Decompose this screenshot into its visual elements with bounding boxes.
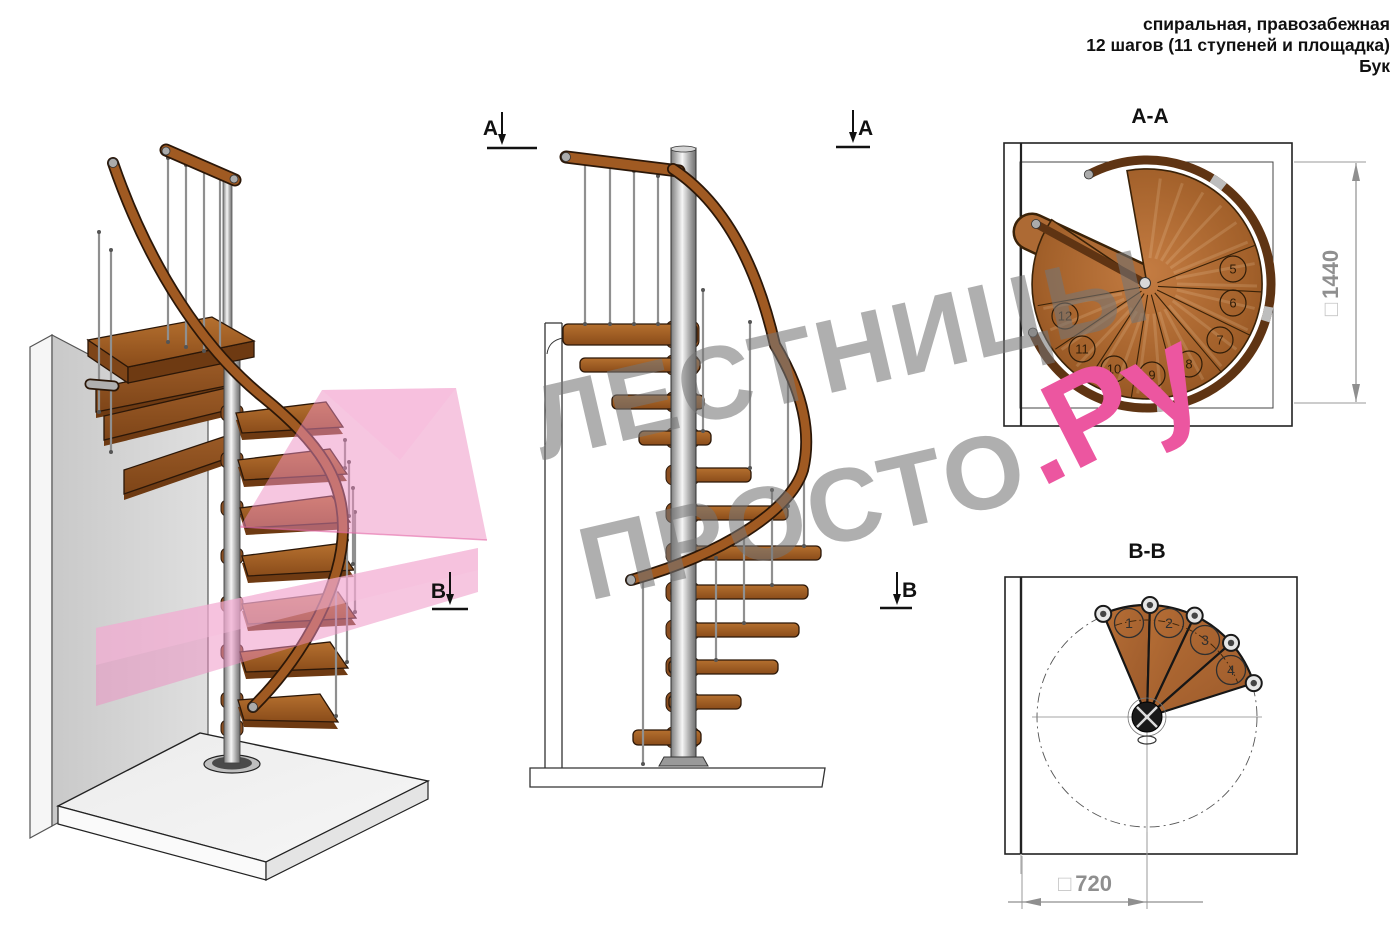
plan-bb-title: B-B	[1128, 540, 1165, 563]
aa-step-number: 6	[1229, 296, 1236, 311]
aa-dimension-text: □1440	[1318, 250, 1343, 316]
aa-step-number: 9	[1148, 368, 1155, 383]
marker-a-letter: A	[858, 117, 873, 140]
bb-step-number: 1	[1125, 615, 1133, 631]
marker-b-letter: B	[902, 579, 917, 602]
spec-steps: 12 шагов (11 ступеней и площадка)	[1086, 35, 1390, 56]
newel-post-iso	[223, 172, 232, 348]
aa-step-number: 11	[1075, 342, 1089, 357]
aa-dimension: □1440	[1294, 162, 1366, 403]
elevation-handrail	[627, 169, 807, 585]
bb-step-number: 3	[1201, 632, 1209, 648]
elevation-top-rail	[562, 153, 680, 172]
aa-step-number: 5	[1229, 262, 1236, 277]
wall-bracket	[90, 384, 114, 386]
center-pole-elevation	[671, 148, 696, 766]
bb-step-number: 4	[1227, 662, 1235, 678]
marker-a-letter: A	[483, 117, 498, 140]
spec-header: спиральная, правозабежная 12 шагов (11 с…	[1086, 14, 1390, 77]
aa-step-number: 7	[1216, 333, 1223, 348]
drawing-sheet: B A A B A-A	[0, 0, 1400, 931]
aa-step-number: 12	[1058, 309, 1072, 324]
aa-step-number: 8	[1185, 357, 1192, 372]
wall-edge	[30, 335, 52, 838]
section-marker-a-left: A	[483, 112, 537, 148]
spec-material: Бук	[1086, 56, 1390, 77]
plan-view-aa: A-A 56789101112 □1440	[1004, 105, 1366, 426]
aa-step-number: 10	[1107, 362, 1121, 377]
bb-dimension-text: □720	[1058, 871, 1112, 896]
marker-b-letter: B	[431, 580, 446, 603]
plan-aa-title: A-A	[1131, 105, 1168, 128]
pole-base-elevation	[659, 757, 708, 766]
spec-type: спиральная, правозабежная	[1086, 14, 1390, 35]
section-marker-b-elevation: B	[880, 572, 917, 608]
plan-view-bb: B-B 1234 □720	[1005, 540, 1297, 909]
elevation-view: A A B	[483, 110, 917, 787]
iso-view: B	[30, 147, 487, 880]
bb-step-number: 2	[1165, 615, 1173, 631]
technical-drawing: B A A B A-A	[0, 0, 1400, 931]
section-marker-a-right: A	[836, 110, 873, 147]
iso-top-rail	[162, 147, 238, 183]
floor-band	[530, 768, 825, 787]
